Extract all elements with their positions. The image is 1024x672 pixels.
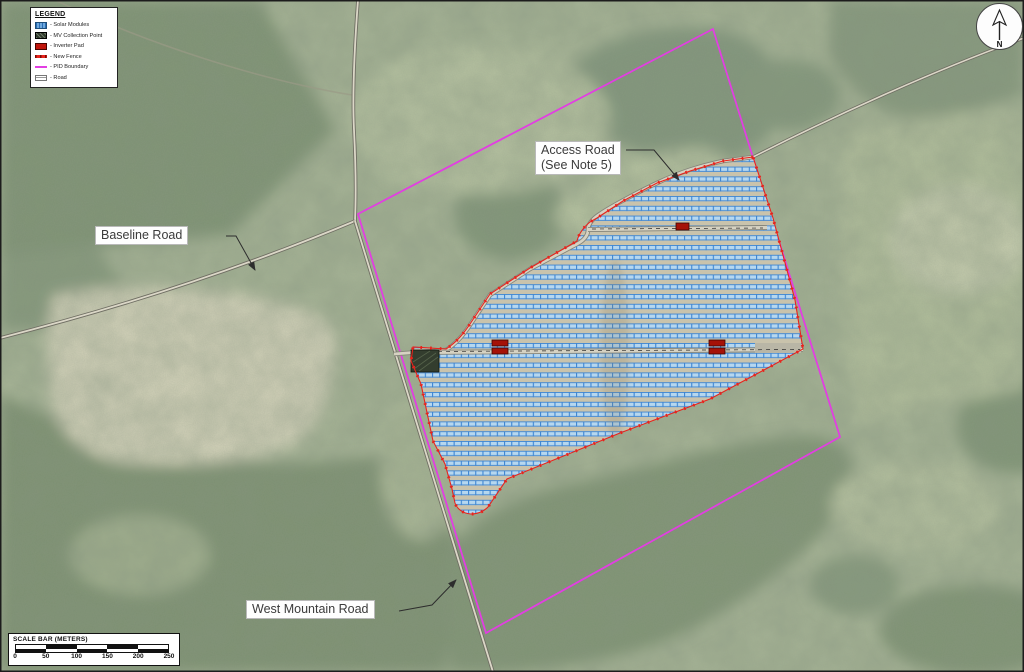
baseline-road-label: Baseline Road <box>95 226 188 245</box>
site-plan-map: LEGEND - Solar Modules - MV Collection P… <box>0 0 1024 672</box>
mv-collection-point <box>411 350 439 372</box>
mv-collection-point-swatch <box>35 32 47 39</box>
legend-item-inverter-pad: - Inverter Pad <box>34 41 114 52</box>
access-road-label: Access Road (See Note 5) <box>535 141 621 175</box>
north-arrow: N <box>976 3 1023 50</box>
scale-bar: SCALE BAR (METERS) 0 50 100 150 200 250 <box>8 633 180 666</box>
legend-item-new-fence: - New Fence <box>34 52 114 63</box>
inverter-pad <box>492 340 508 346</box>
scale-bar-title: SCALE BAR (METERS) <box>13 636 175 643</box>
inverter-pad <box>676 223 689 230</box>
legend-title: LEGEND <box>35 11 114 18</box>
north-arrow-icon: N <box>977 4 1022 49</box>
legend-item-solar-modules: - Solar Modules <box>34 20 114 31</box>
legend-item-pid-boundary: - PID Boundary <box>34 62 114 73</box>
inverter-pad <box>709 348 725 354</box>
inverter-pad <box>709 340 725 346</box>
road-swatch <box>35 75 47 81</box>
legend: LEGEND - Solar Modules - MV Collection P… <box>30 7 118 88</box>
scale-bar-ticks: 0 50 100 150 200 250 <box>15 653 169 661</box>
inverter-pad <box>492 348 508 354</box>
new-fence-swatch <box>35 55 47 58</box>
laydown-area <box>755 343 801 353</box>
aerial-map-canvas <box>0 0 1024 672</box>
svg-text:N: N <box>997 40 1003 49</box>
scale-bar-graphic <box>15 644 169 653</box>
legend-item-road: - Road <box>34 73 114 84</box>
solar-modules-swatch <box>35 22 47 29</box>
inverter-pad-swatch <box>35 43 47 50</box>
west-mountain-road-label: West Mountain Road <box>246 600 375 619</box>
legend-item-mv-collection-point: - MV Collection Point <box>34 31 114 42</box>
pid-boundary-swatch <box>35 66 47 68</box>
